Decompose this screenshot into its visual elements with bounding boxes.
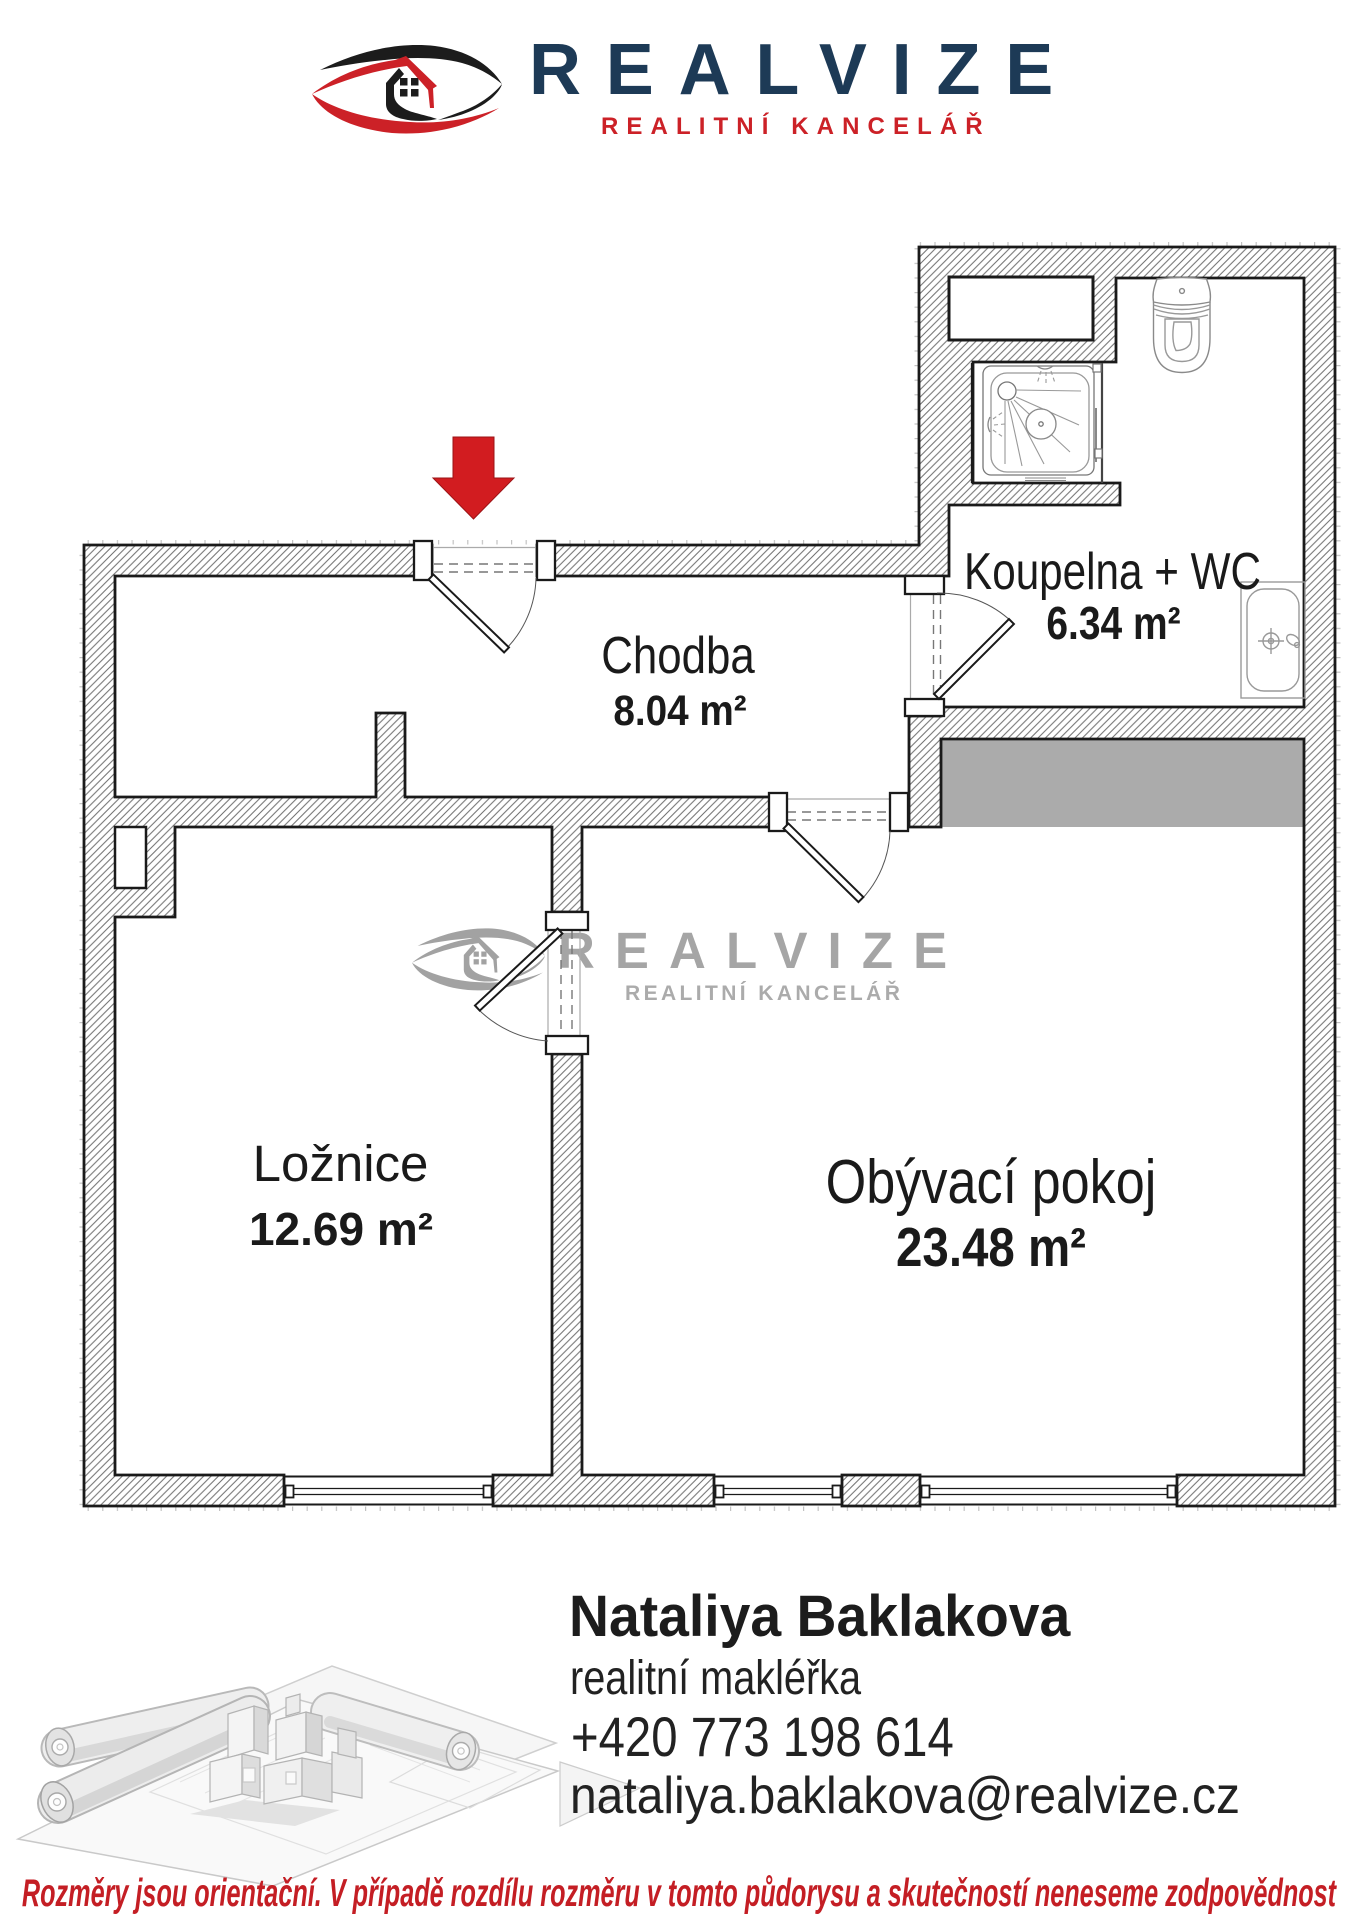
svg-text:REALVIZE: REALVIZE — [529, 30, 1078, 110]
svg-text:REALITNÍ KANCELÁŘ: REALITNÍ KANCELÁŘ — [625, 981, 903, 1005]
svg-text:realitní makléřka: realitní makléřka — [570, 1651, 862, 1704]
svg-text:8.04 m²: 8.04 m² — [613, 686, 746, 734]
svg-text:+420 773 198 614: +420 773 198 614 — [571, 1705, 954, 1768]
svg-text:Obývací pokoj: Obývací pokoj — [826, 1148, 1157, 1217]
svg-text:nataliya.baklakova@realvize.cz: nataliya.baklakova@realvize.cz — [570, 1766, 1240, 1824]
svg-text:6.34 m²: 6.34 m² — [1046, 598, 1180, 650]
svg-text:REALITNÍ KANCELÁŘ: REALITNÍ KANCELÁŘ — [601, 112, 991, 140]
svg-text:Chodba: Chodba — [601, 627, 755, 685]
svg-text:Koupelna + WC: Koupelna + WC — [964, 543, 1261, 601]
svg-text:Nataliya Baklakova: Nataliya Baklakova — [569, 1585, 1071, 1649]
svg-text:12.69 m²: 12.69 m² — [249, 1203, 433, 1255]
svg-text:Rozměry jsou orientační. V pří: Rozměry jsou orientační. V případě rozdí… — [22, 1870, 1338, 1914]
svg-text:REALVIZE: REALVIZE — [558, 922, 967, 979]
svg-text:Ložnice: Ložnice — [253, 1135, 429, 1192]
svg-text:23.48 m²: 23.48 m² — [896, 1216, 1086, 1278]
